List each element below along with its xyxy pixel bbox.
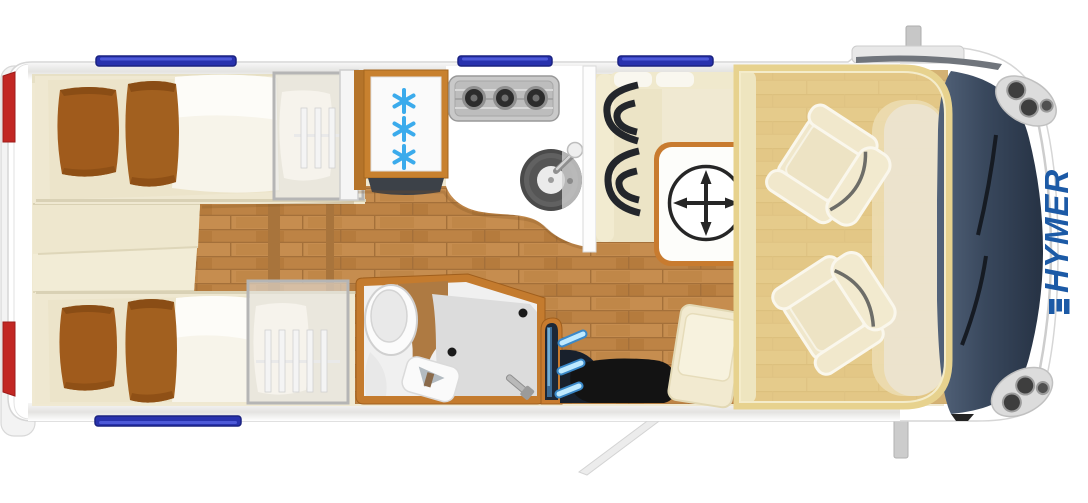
svg-text:HYMER: HYMER bbox=[1038, 169, 1075, 293]
